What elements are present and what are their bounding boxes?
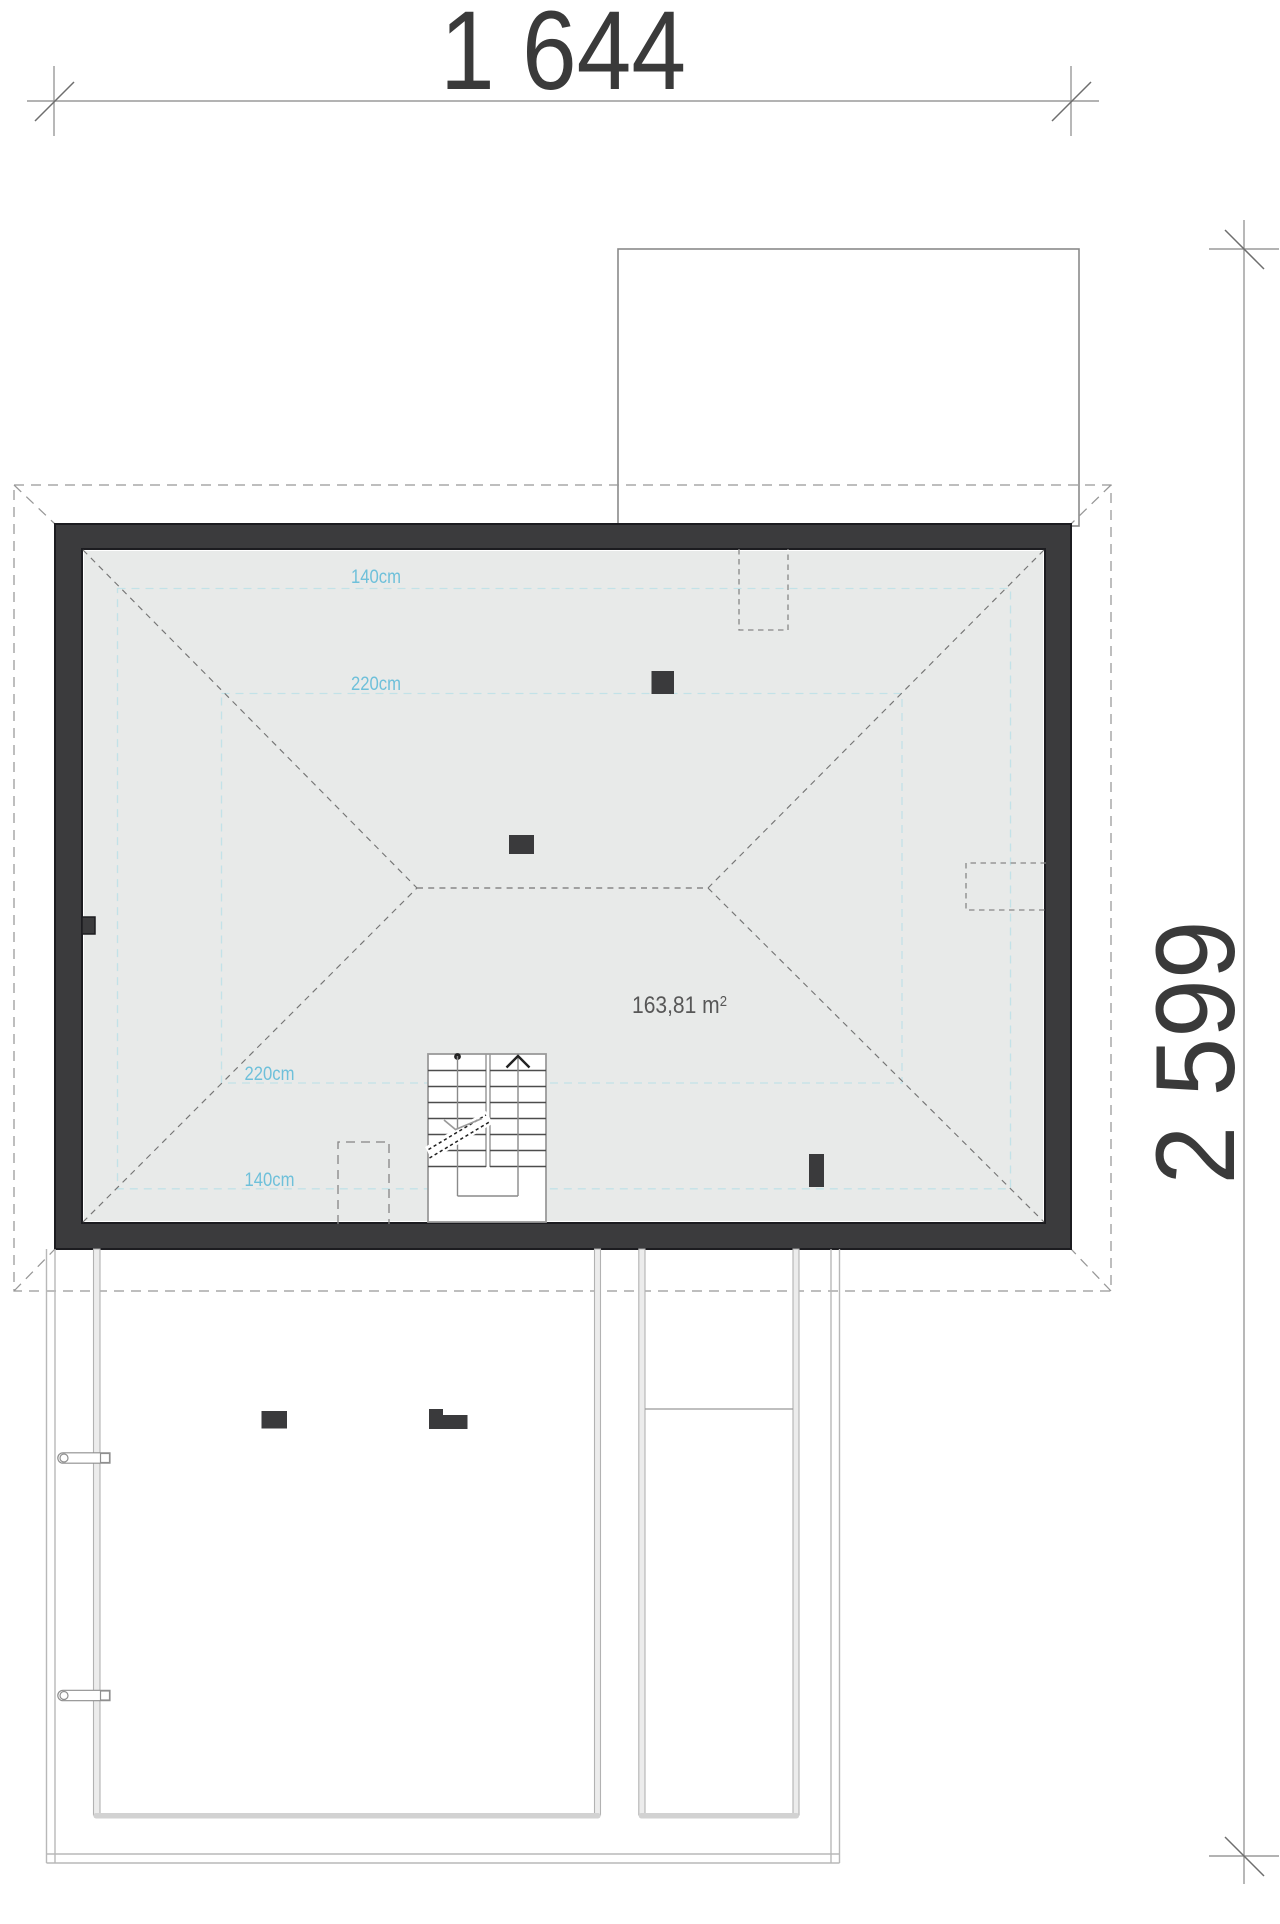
svg-text:140cm: 140cm bbox=[245, 1169, 295, 1191]
svg-text:140cm: 140cm bbox=[351, 566, 401, 588]
svg-text:163,81 m2: 163,81 m2 bbox=[632, 992, 727, 1019]
svg-text:220cm: 220cm bbox=[245, 1063, 295, 1085]
svg-text:220cm: 220cm bbox=[351, 673, 401, 695]
svg-text:1 644: 1 644 bbox=[440, 0, 686, 113]
svg-text:2 599: 2 599 bbox=[1133, 921, 1258, 1185]
